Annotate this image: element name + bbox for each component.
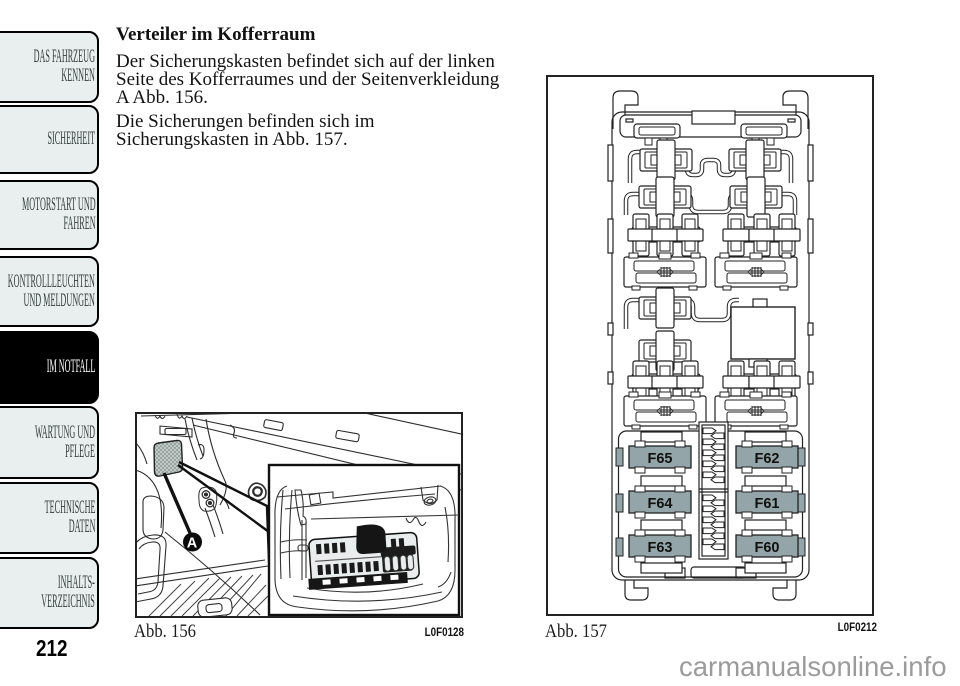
svg-text:F63: F63 (648, 540, 673, 556)
svg-text:F65: F65 (648, 451, 673, 467)
svg-text:F64: F64 (648, 496, 673, 512)
svg-text:F61: F61 (755, 496, 780, 512)
svg-text:F60: F60 (755, 540, 780, 556)
svg-text:F62: F62 (755, 451, 780, 467)
svg-text:A: A (187, 536, 198, 552)
